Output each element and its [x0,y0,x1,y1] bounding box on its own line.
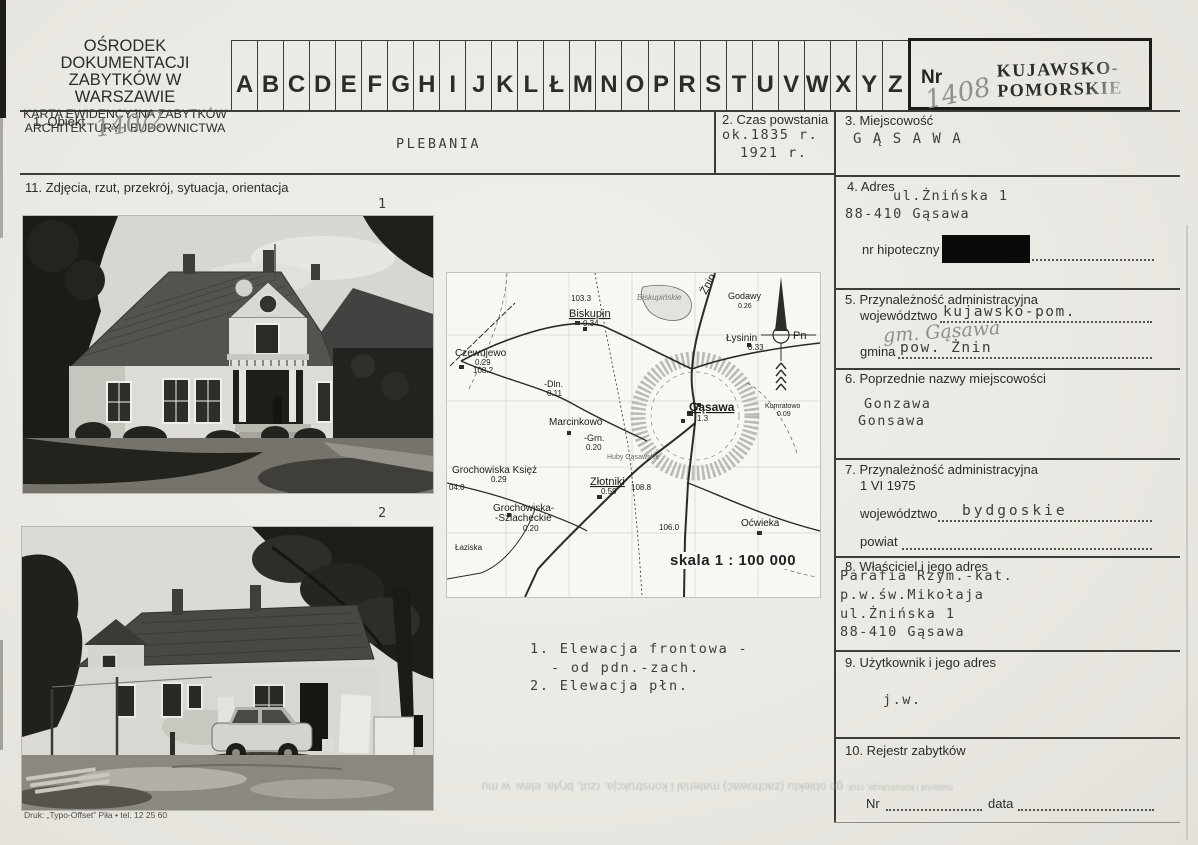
field4-label: 4. Adres [847,179,895,194]
alphabet-cell-X: X [830,41,856,110]
alphabet-cell-Z: Z [882,41,908,110]
divider-f4 [834,288,1180,290]
field7-wojewodztwo-label: województwo [860,506,937,521]
field10-nr-dotted [886,808,982,811]
field9-value: j.w. [883,692,922,708]
org-line-2: ZABYTKÓW W WARSZAWIE [20,72,230,106]
map-label-marcinkowo: Marcinkowo [549,417,603,428]
map-label-04-0: 04.0 [449,483,465,492]
field1-value: PLEBANIA [396,136,481,152]
photo1-illustration [23,216,433,493]
field7-powiat-dotted [902,547,1152,550]
map-label-biskupińskie: Biskupińskie [637,293,682,302]
field10-data-dotted [1018,808,1154,811]
field2-line2: 1921 r. [740,145,807,161]
caption-line-3: 2. Elewacja płn. [530,678,689,694]
field8-line-2: p.w.św.Mikołaja [840,586,1013,605]
field5-gmina-dotted [898,356,1152,359]
field5-gmina-value: pow. Żnin [900,340,992,356]
alphabet-cell-K: K [491,41,517,110]
caption-line-2: - od pdn.-zach. [551,660,700,676]
field7-wojewodztwo-dotted [938,519,1152,522]
field3-value: G Ą S A W A [853,131,962,147]
alphabet-cell-Y: Y [856,41,882,110]
map-label-0-34: 0.34 [583,319,599,328]
map-illustration: ŻninGodawy0.26103.3Biskupin0.34Biskupińs… [447,273,820,597]
map-scale-label: skala 1 : 100 000 [666,552,800,569]
alphabet-cell-N: N [595,41,621,110]
field7-wojewodztwo-value: bydgoskie [962,503,1068,519]
divider-field1 [20,173,835,175]
divider-header [20,110,1180,112]
alphabet-cell-E: E [335,41,361,110]
field4-line2: 88-410 Gąsawa [845,206,970,222]
map-label-0-26: 0.26 [738,303,752,310]
alphabet-cell-O: O [621,41,647,110]
divider-f8 [834,650,1180,652]
alphabet-cell-Ł: Ł [543,41,569,110]
field7-date: 1 VI 1975 [860,478,916,493]
map-label-komratowo: Komratowo [765,403,801,410]
field5-wojewodztwo-label: województwo [860,308,937,323]
map-label-oćwieka: Oćwieka [741,518,780,529]
map-label-1-3: 1.3 [697,414,709,423]
divider-f10-bottom [834,822,1180,823]
alphabet-cell-F: F [361,41,387,110]
map-label-godawy: Godawy [728,291,762,301]
print-info: Druk: „Typo-Offset” Piła • tel. 12 25 60 [24,810,167,820]
map-label-108-2: 108.2 [473,366,494,375]
field6-line1: Gonzawa [864,396,931,412]
alphabet-cell-H: H [413,41,439,110]
map-label-0-20: 0.20 [586,443,602,452]
alphabet-cell-T: T [726,41,752,110]
alphabet-cell-L: L [517,41,543,110]
field5-gmina-label: gmina [860,344,895,359]
map-label-huby-gąsawskie: Huby Gąsawskie [607,454,660,461]
map-label--grn-: -Grn. [584,433,605,443]
heritage-record-card: OŚRODEK DOKUMENTACJI ZABYTKÓW W WARSZAWI… [0,0,1198,845]
field11-label: 11. Zdjęcia, rzut, przekrój, sytuacja, o… [25,180,289,195]
map-label-0-11: 0.11 [547,389,563,398]
map-label-0-29: 0.29 [491,475,507,484]
map-label-0-09: 0.09 [777,411,791,418]
alphabet-cell-S: S [700,41,726,110]
location-map: ŻninGodawy0.26103.3Biskupin0.34Biskupińs… [447,273,820,597]
divider-f7 [834,556,1180,558]
field6-label: 6. Poprzednie nazwy miejscowości [845,371,1046,386]
alphabet-cell-M: M [569,41,595,110]
alphabet-cell-W: W [804,41,830,110]
field8-line-1: Parafia Rzym.-kat. [840,567,1013,586]
map-label-gąsawa: Gąsawa [689,400,735,414]
divider-f9 [834,737,1180,739]
alphabet-cell-P: P [648,41,674,110]
divider-f6 [834,458,1180,460]
bleed-through-text-right: materiał i konstrukcja, rzut. [838,783,953,793]
alphabet-strip: ABCDEFGHIJKLŁMNOPRSTUVWXYZ [231,40,908,110]
photo-front-elevation [23,216,433,493]
field8-owner-lines: Parafia Rzym.-kat.p.w.św.Mikołajaul.Żniń… [840,567,1013,642]
map-label-pn: Pn [793,330,806,342]
map-label-106-0: 106.0 [659,523,680,532]
map-label-żnin: Żnin [697,273,719,296]
alphabet-cell-R: R [674,41,700,110]
paper-edge-right [1186,225,1188,840]
field10-nr-label: Nr [866,796,880,811]
photo1-number: 1 [378,196,388,212]
field5-wojewodztwo-value: kujawsko-pom. [943,304,1076,320]
alphabet-cell-U: U [752,41,778,110]
map-label-0-20: 0.20 [523,524,539,533]
divider-f1-f2 [714,110,716,173]
field7-label: 7. Przynależność administracyjna [845,462,1038,477]
field4-line1: ul.Żnińska 1 [893,188,1009,204]
nr-box: Nr 1408 KUJAWSKO- POMORSKIE [908,38,1152,110]
alphabet-cell-B: B [257,41,283,110]
divider-f5 [834,368,1180,370]
field10-label: 10. Rejestr zabytków [845,743,966,758]
field2-line1: ok.1835 r. [722,127,818,143]
alphabet-cell-A: A [231,41,257,110]
map-label-108-8: 108.8 [631,483,652,492]
north-indicator [761,277,816,390]
divider-right-column [834,110,836,822]
field2-label: 2. Czas powstania [722,112,828,127]
field8-line-4: 88-410 Gąsawa [840,623,1013,642]
field8-line-3: ul.Żnińska 1 [840,605,1013,624]
stamp-line-2: POMORSKIE [997,77,1123,100]
field3-label: 3. Miejscowość [845,113,933,128]
scan-edge-left [0,118,3,238]
field1-label: 1. Obiekt [33,114,85,129]
field9-label: 9. Użytkownik i jego adres [845,655,996,670]
map-label--szlacheckie: -Szlacheckie [495,513,552,524]
alphabet-cell-G: G [387,41,413,110]
caption-line-1: 1. Elewacja frontowa - [530,641,748,657]
alphabet-cell-C: C [283,41,309,110]
alphabet-cell-J: J [465,41,491,110]
divider-field3 [834,175,1180,177]
bleed-through-text-main: go obiektu (zachować) materiał i konstru… [455,780,843,794]
field7-powiat-label: powiat [860,534,898,549]
map-label-łaziska: Łaziska [455,543,483,552]
redaction-box [942,235,1030,263]
map-label--dln-: -Dln. [544,379,563,389]
photo-north-elevation [22,527,433,810]
alphabet-cell-V: V [778,41,804,110]
alphabet-cell-I: I [439,41,465,110]
field4-dotted-line [1032,258,1154,261]
photo2-number: 2 [378,505,388,521]
field6-line2: Gonsawa [858,413,925,429]
map-label-0-59: 0.59 [601,487,617,496]
map-label-0-33: 0.33 [748,343,764,352]
map-label-103-3: 103.3 [571,294,592,303]
field4-hipoteczny-label: nr hipoteczny [862,242,939,257]
photo2-illustration [22,527,433,810]
alphabet-cell-D: D [309,41,335,110]
voivodeship-stamp: KUJAWSKO- POMORSKIE [996,57,1123,100]
org-line-1: OŚRODEK DOKUMENTACJI [20,38,230,72]
scan-edge-top-left [0,0,6,118]
scan-edge-left-lower [0,640,3,750]
field10-data-label: data [988,796,1013,811]
